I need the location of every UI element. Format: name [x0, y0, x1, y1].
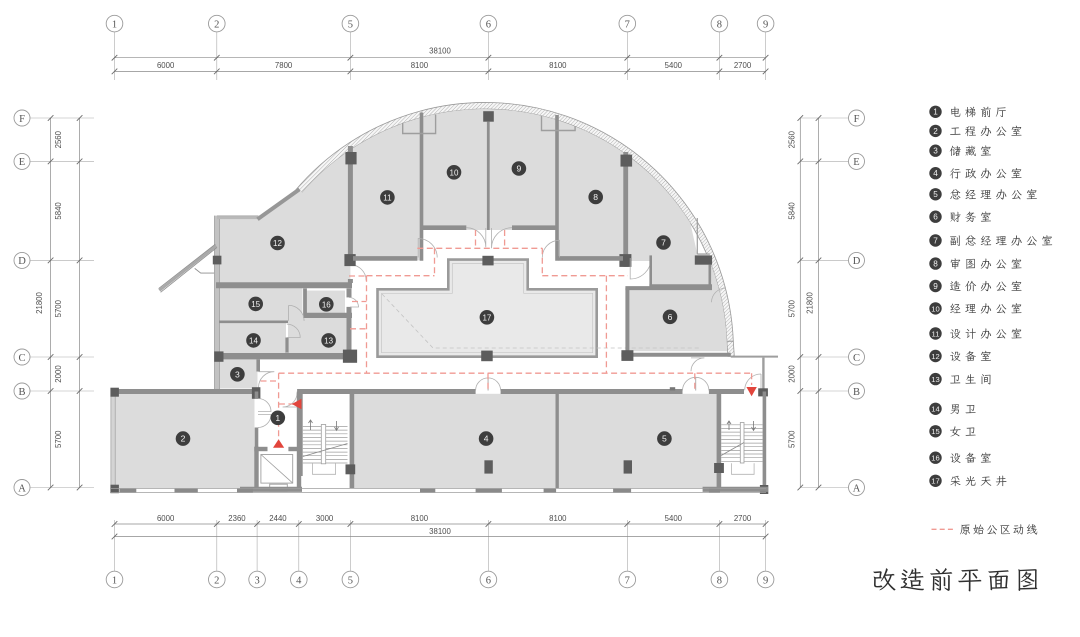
svg-text:A: A	[853, 483, 861, 494]
svg-text:C: C	[853, 353, 860, 364]
svg-text:17: 17	[482, 313, 491, 322]
svg-text:1: 1	[112, 575, 117, 586]
svg-text:2000: 2000	[54, 365, 63, 383]
svg-text:5: 5	[348, 575, 353, 586]
svg-text:1: 1	[112, 19, 117, 30]
svg-text:5700: 5700	[788, 299, 797, 317]
svg-text:10: 10	[931, 304, 939, 313]
svg-text:8100: 8100	[411, 514, 429, 523]
svg-text:17: 17	[931, 477, 939, 486]
svg-text:3: 3	[235, 369, 240, 379]
svg-text:13: 13	[324, 337, 333, 346]
svg-text:D: D	[18, 256, 26, 267]
svg-text:15: 15	[251, 300, 260, 309]
svg-text:2360: 2360	[228, 514, 246, 523]
svg-text:9: 9	[763, 575, 768, 586]
svg-text:2: 2	[933, 127, 938, 136]
svg-text:2440: 2440	[269, 514, 287, 523]
svg-text:8100: 8100	[549, 61, 567, 70]
svg-text:7: 7	[933, 236, 938, 245]
svg-text:3000: 3000	[316, 514, 334, 523]
svg-text:7: 7	[661, 238, 666, 248]
svg-text:F: F	[854, 114, 860, 125]
svg-text:10: 10	[450, 168, 459, 177]
svg-text:3: 3	[933, 147, 938, 156]
svg-text:2700: 2700	[734, 514, 752, 523]
svg-text:B: B	[18, 387, 25, 398]
svg-text:16: 16	[931, 454, 939, 463]
svg-text:6: 6	[668, 312, 673, 322]
svg-text:13: 13	[931, 375, 939, 384]
svg-text:8100: 8100	[411, 61, 429, 70]
svg-text:11: 11	[383, 194, 392, 203]
svg-text:5840: 5840	[54, 202, 63, 220]
svg-text:1: 1	[275, 413, 280, 423]
svg-text:7: 7	[625, 19, 630, 30]
svg-text:A: A	[18, 483, 26, 494]
svg-text:E: E	[19, 157, 25, 168]
svg-text:11: 11	[932, 329, 940, 338]
svg-text:E: E	[853, 157, 859, 168]
svg-text:5: 5	[662, 434, 667, 444]
svg-text:6000: 6000	[157, 61, 175, 70]
svg-text:12: 12	[931, 352, 939, 361]
svg-text:38100: 38100	[429, 47, 451, 56]
svg-text:8: 8	[717, 19, 722, 30]
svg-text:F: F	[19, 114, 25, 125]
svg-text:21800: 21800	[35, 291, 44, 313]
svg-text:8: 8	[933, 260, 938, 269]
svg-text:2560: 2560	[788, 130, 797, 148]
svg-text:9: 9	[517, 164, 522, 174]
svg-text:6: 6	[486, 575, 491, 586]
svg-text:5700: 5700	[788, 430, 797, 448]
svg-text:5: 5	[933, 190, 938, 199]
svg-text:B: B	[853, 387, 860, 398]
svg-text:5: 5	[348, 19, 353, 30]
svg-text:3: 3	[254, 575, 259, 586]
svg-text:7: 7	[625, 575, 630, 586]
svg-text:8: 8	[717, 575, 722, 586]
svg-text:2700: 2700	[734, 61, 752, 70]
svg-text:4: 4	[933, 169, 938, 178]
svg-text:8: 8	[593, 192, 598, 202]
svg-text:2: 2	[181, 434, 186, 444]
svg-text:6: 6	[933, 213, 938, 222]
svg-text:12: 12	[273, 239, 282, 248]
svg-text:38100: 38100	[429, 527, 451, 536]
svg-text:5400: 5400	[665, 61, 683, 70]
svg-text:5840: 5840	[788, 202, 797, 220]
svg-text:15: 15	[931, 427, 939, 436]
svg-text:6000: 6000	[157, 514, 175, 523]
svg-text:7800: 7800	[275, 61, 293, 70]
svg-text:4: 4	[296, 575, 302, 586]
svg-text:9: 9	[763, 19, 768, 30]
svg-text:9: 9	[933, 282, 938, 291]
svg-text:1: 1	[933, 108, 938, 117]
svg-text:21800: 21800	[805, 291, 814, 313]
svg-text:5400: 5400	[665, 514, 683, 523]
svg-text:6: 6	[486, 19, 491, 30]
svg-text:C: C	[18, 353, 25, 364]
svg-text:2: 2	[214, 575, 219, 586]
svg-text:8100: 8100	[549, 514, 567, 523]
svg-text:16: 16	[322, 300, 331, 309]
svg-text:2: 2	[214, 19, 219, 30]
svg-text:14: 14	[249, 337, 258, 346]
svg-text:2560: 2560	[54, 130, 63, 148]
svg-text:4: 4	[484, 434, 489, 444]
svg-text:2000: 2000	[788, 365, 797, 383]
svg-text:5700: 5700	[54, 299, 63, 317]
svg-text:14: 14	[931, 405, 939, 414]
svg-text:5700: 5700	[54, 430, 63, 448]
svg-text:D: D	[853, 256, 861, 267]
